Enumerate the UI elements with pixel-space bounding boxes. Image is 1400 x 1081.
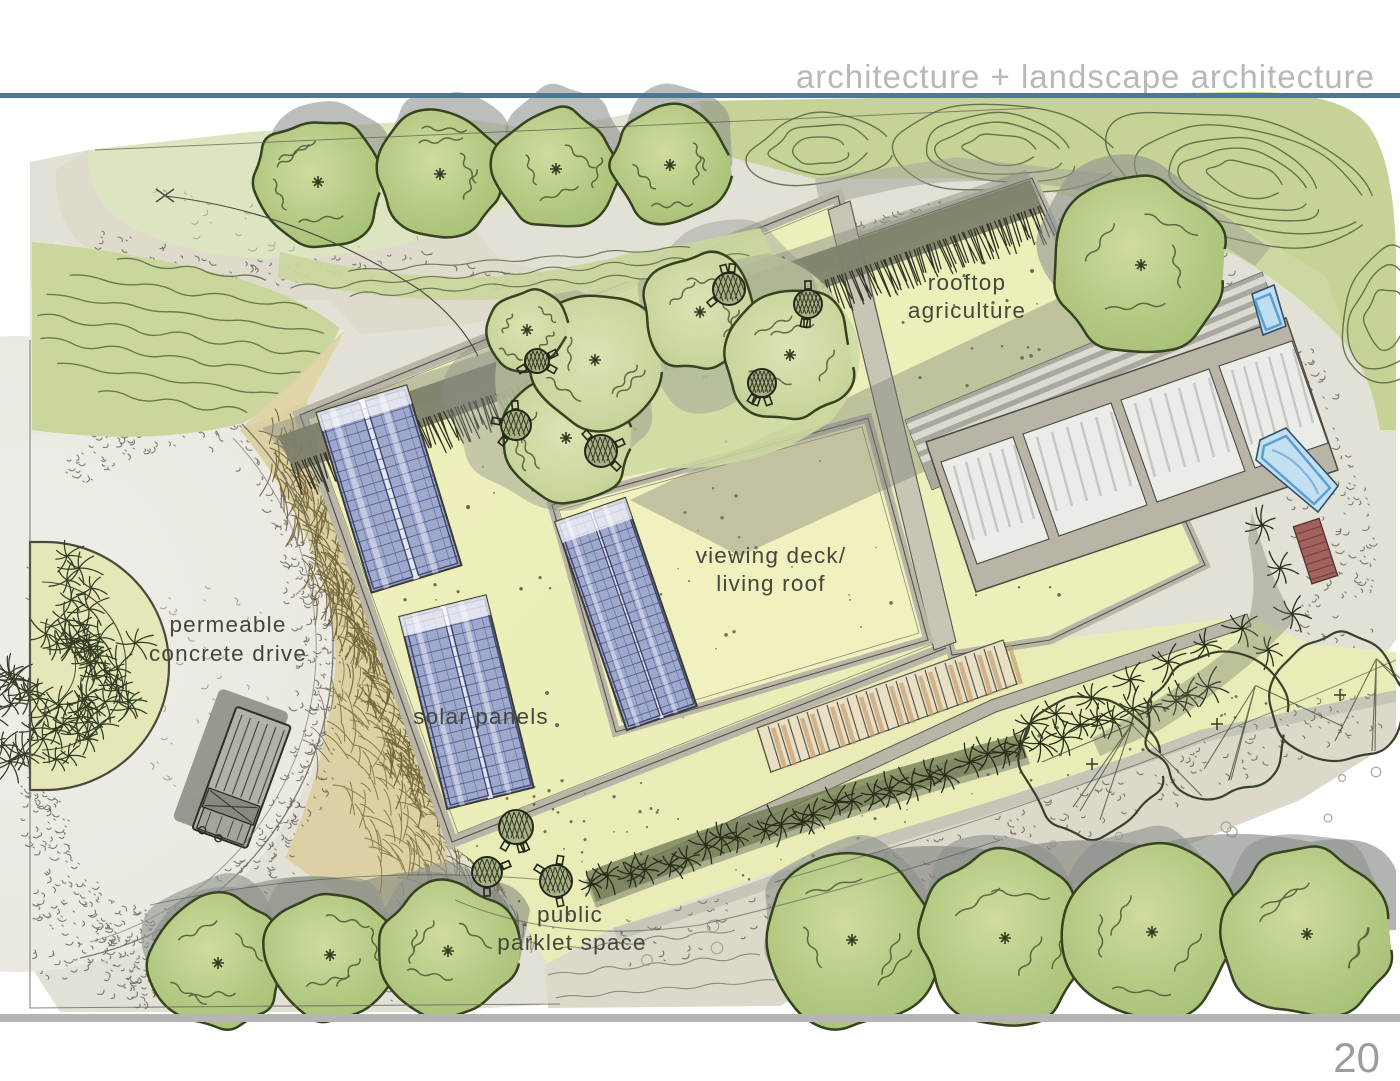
svg-text:solar panels: solar panels bbox=[413, 704, 549, 729]
svg-text:viewing deck/: viewing deck/ bbox=[696, 543, 847, 568]
svg-text:living roof: living roof bbox=[716, 571, 826, 596]
svg-text:agriculture: agriculture bbox=[908, 298, 1026, 323]
svg-text:architecture + landscape archi: architecture + landscape architecture bbox=[796, 58, 1375, 95]
svg-text:public: public bbox=[537, 902, 603, 927]
svg-text:rooftop: rooftop bbox=[928, 270, 1006, 295]
svg-text:concrete drive: concrete drive bbox=[149, 641, 307, 666]
svg-text:permeable: permeable bbox=[169, 612, 286, 637]
svg-text:20: 20 bbox=[1333, 1034, 1380, 1081]
svg-text:parklet space: parklet space bbox=[497, 930, 646, 955]
